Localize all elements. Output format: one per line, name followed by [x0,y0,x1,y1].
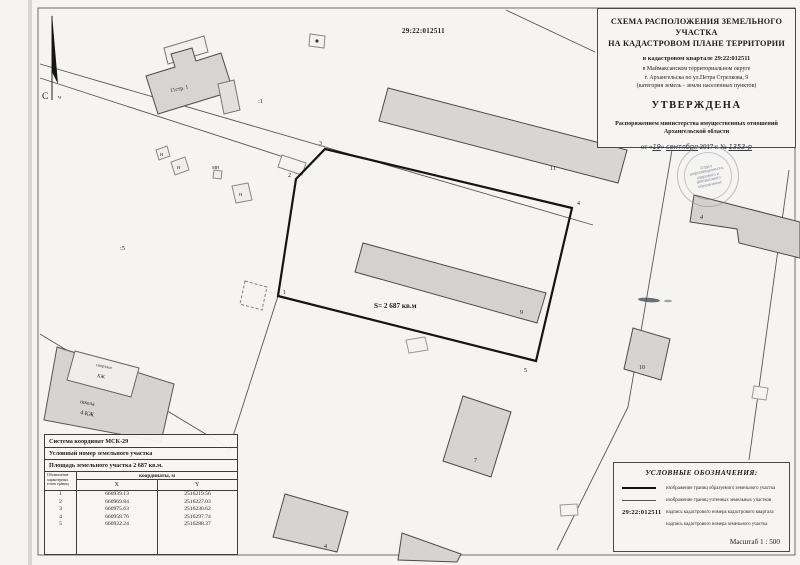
quarter-number-symbol: 29:22:012511 [622,509,661,516]
order-number-handwritten: 1353-р [729,143,752,151]
building-11str1-annex [218,80,240,114]
building-small-east [752,386,768,400]
building-4-right-label: 4 [700,214,703,221]
parcel-5-label: :5 [120,245,125,252]
legend-item: изображение границ учтенных земельных уч… [618,494,785,506]
north-arrow-blade [52,14,58,84]
building-10 [624,328,670,380]
point-number-column: 1 2 3 4 5 [45,491,77,554]
legend-panel: УСЛОВНЫЕ ОБОЗНАЧЕНИЯ: изображение границ… [613,462,790,552]
legend-item-label: изображение границ образуемого земельног… [666,486,775,491]
okrug-line: в Маймаксанском территориальном округе [598,65,795,74]
order-line-1: Распоряжением министерства имущественных… [598,120,795,129]
building-11-label: 11 [550,166,556,172]
building-4 [273,494,348,552]
y-column-header: Y [158,480,238,490]
quarter-number-label: 29:22:012511 [402,27,445,35]
parcel-area-row: Площадь земельного участка 2 687 кв.м. [45,460,237,472]
boundary-line [506,10,595,52]
table-cell: 660969.84 [77,499,157,507]
table-header: Обозначение характерных точек границ коо… [45,472,237,491]
stamp-inner-circle: Отдел информационного, кадрового и финан… [680,148,737,205]
legend-item: 29:22:012511 надпись кадастрового номера… [618,506,785,518]
building-7-label: 7 [474,458,477,464]
approved-label: УТВЕРЖДЕНА [598,100,795,111]
table-cell: 660975.63 [77,506,157,514]
date-prefix: от « [641,144,652,151]
shed-mn-label: МН [212,165,220,170]
coordinates-table: Система координат МСК-29 Условный номер … [44,434,238,555]
building-7 [443,396,511,477]
building-4-label: 4 [324,544,327,550]
building-11str1 [146,48,233,114]
legend-item: надпись кадастрового номера земельного у… [618,518,785,530]
legend-title: УСЛОВНЫЕ ОБОЗНАЧЕНИЯ: [618,468,785,477]
building-bottom-east [398,533,461,562]
table-cell: 660922.24 [77,521,157,529]
ink-smudge [638,297,660,303]
point-3-label: 3 [319,141,322,147]
building-10-label: 10 [639,365,645,371]
table-cell: 2516230.62 [158,506,237,514]
building-9 [355,243,546,323]
table-cell: 3 [45,506,76,514]
building-small-center [406,337,428,353]
x-column-header: X [77,480,158,490]
shed-mn [213,170,222,179]
conditional-number-row: Условный номер земельного участка [45,448,237,460]
point-5-label: 5 [524,368,527,374]
address-line: г. Архангельска по ул.Петра Стрелкова, 9 [598,74,795,83]
date-close-quote: » [661,144,664,151]
parcel-1-label: :1 [258,98,263,105]
title-panel: СХЕМА РАСПОЛОЖЕНИЯ ЗЕМЕЛЬНОГО УЧАСТКА НА… [597,8,796,148]
table-cell: 5 [45,521,76,529]
new-boundary-symbol [622,487,656,490]
cadastral-quarter-line: в кадастровом квартале 29:22:012511 [598,55,795,62]
y-coordinate-column: 2516219.56 2516227.03 2516230.62 2516297… [158,491,237,554]
point-2-label: 2 [288,173,291,179]
designation-column-header: Обозначение характерных точек границ [45,472,77,490]
point-4-label: 4 [577,201,580,207]
boundary-line [228,296,278,452]
building-9-label: 9 [520,310,523,316]
date-day-handwritten: 19 [652,143,660,151]
building-dashed-outline [240,281,267,310]
land-category-line: (категория земель - земли населенных пун… [598,82,795,91]
new-parcel-boundary [278,149,572,361]
legend-item-label: надпись кадастрового номера кадастрового… [666,510,774,515]
north-label: С [42,92,48,102]
point-1-label: 1 [283,290,286,296]
table-cell: 660939.13 [77,491,157,499]
table-cell: 2516288.37 [158,521,237,529]
table-cell: 4 [45,514,76,522]
x-coordinate-column: 660939.13 660969.84 660975.63 660958.76 … [77,491,158,554]
north-arrow: С ч [42,14,61,102]
table-cell: 1 [45,491,76,499]
building-small-southeast [560,504,578,516]
scale-label: Масштаб 1 : 500 [730,538,780,546]
table-body: 1 2 3 4 5 660939.13 660969.84 660975.63 … [45,491,237,554]
registered-boundary-symbol [622,500,656,501]
order-line-2: Архангельской области [598,128,795,137]
table-cell: 2516227.03 [158,499,237,507]
legend-item-label: надпись кадастрового номера земельного у… [666,522,767,527]
table-cell: 660958.76 [77,514,157,522]
north-mark: ч [58,95,61,101]
scheme-title-line1: СХЕМА РАСПОЛОЖЕНИЯ ЗЕМЕЛЬНОГО УЧАСТКА [598,16,795,38]
table-cell: 2 [45,499,76,507]
legend-item-label: изображение границ учтенных земельных уч… [666,498,771,503]
table-cell: 2516297.74 [158,514,237,522]
coordinates-column-header: координаты, м [77,472,237,480]
ink-dot [315,39,318,42]
parcel-area-label: S= 2 687 кв.м [374,302,417,310]
coord-system-row: Система координат МСК-29 [45,435,237,448]
ink-smudge [664,300,672,302]
legend-item: изображение границ образуемого земельног… [618,482,785,494]
scheme-title-line2: НА КАДАСТРОВОМ ПЛАНЕ ТЕРРИТОРИИ [598,38,795,49]
building-11 [379,88,627,183]
table-cell: 2516219.56 [158,491,237,499]
cadastral-scheme-sheet: С ч 29:22:012511 S= 2 687 кв.м :1 :5 11с… [0,0,800,565]
